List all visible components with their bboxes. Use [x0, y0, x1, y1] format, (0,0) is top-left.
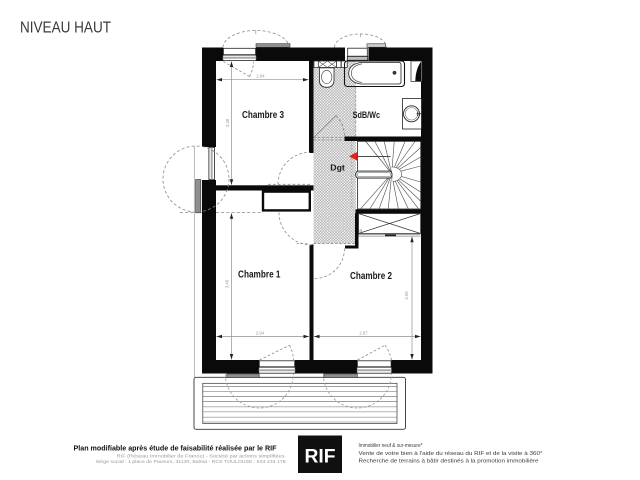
svg-text:RIF: RIF [305, 445, 336, 467]
svg-text:2.97: 2.97 [359, 330, 368, 335]
svg-text:3.48: 3.48 [225, 279, 230, 288]
svg-text:Dgt: Dgt [330, 162, 345, 172]
svg-text:Chambre 2: Chambre 2 [350, 271, 392, 282]
svg-text:Vente de votre bien à l'aide d: Vente de votre bien à l'aide du réseau d… [359, 451, 543, 457]
svg-text:SdB/Wc: SdB/Wc [353, 110, 381, 120]
svg-text:Chambre 3: Chambre 3 [242, 110, 284, 121]
svg-text:Plan modifiable après étude de: Plan modifiable après étude de faisabili… [74, 444, 278, 453]
svg-text:2.94: 2.94 [256, 330, 265, 335]
svg-text:Recherche de terrains à bâtir: Recherche de terrains à bâtir destinés à… [359, 459, 539, 465]
svg-text:2.94: 2.94 [256, 74, 265, 79]
svg-text:Immobilier neuf & sur-mesure*: Immobilier neuf & sur-mesure* [359, 443, 424, 449]
svg-text:Chambre 1: Chambre 1 [238, 269, 281, 280]
svg-text:Siège social : 1 place de Pave: Siège social : 1 place de Paveurs, 31130… [96, 459, 286, 464]
svg-text:RIF (Réseau Immobilier de Fran: RIF (Réseau Immobilier de France) - Soci… [117, 454, 286, 459]
svg-text:NIVEAU HAUT: NIVEAU HAUT [20, 20, 111, 37]
svg-text:3.59: 3.59 [404, 291, 409, 300]
svg-text:3.38: 3.38 [225, 118, 230, 127]
